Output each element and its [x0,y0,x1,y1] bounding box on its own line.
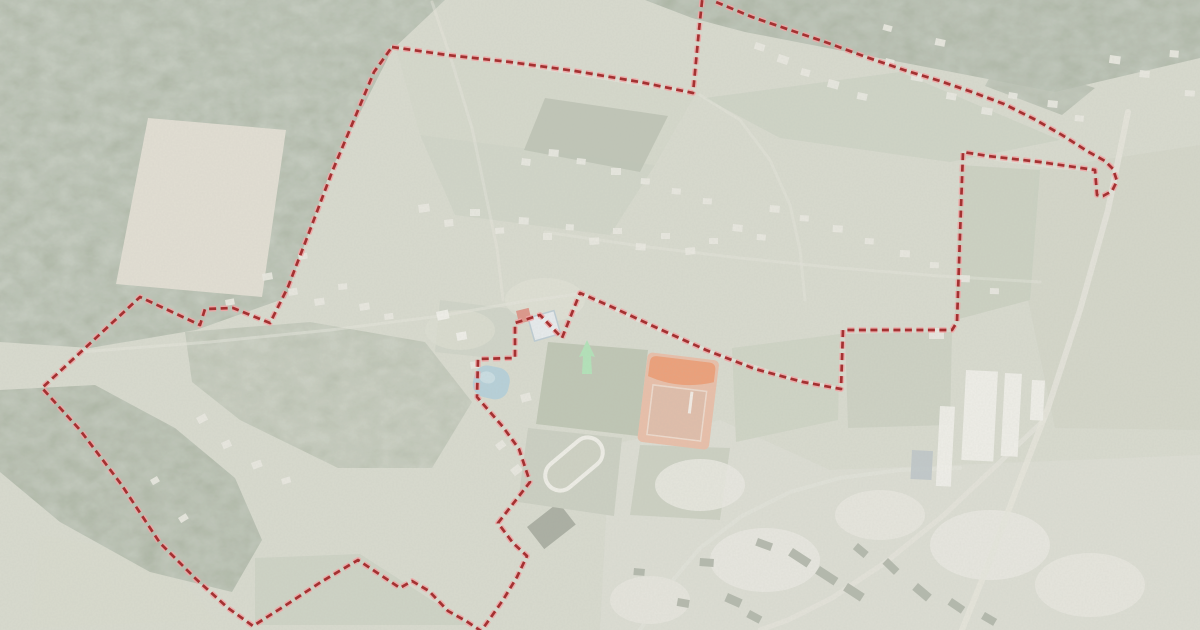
aerial-map-image [0,0,1200,630]
map-viewport [0,0,1200,630]
